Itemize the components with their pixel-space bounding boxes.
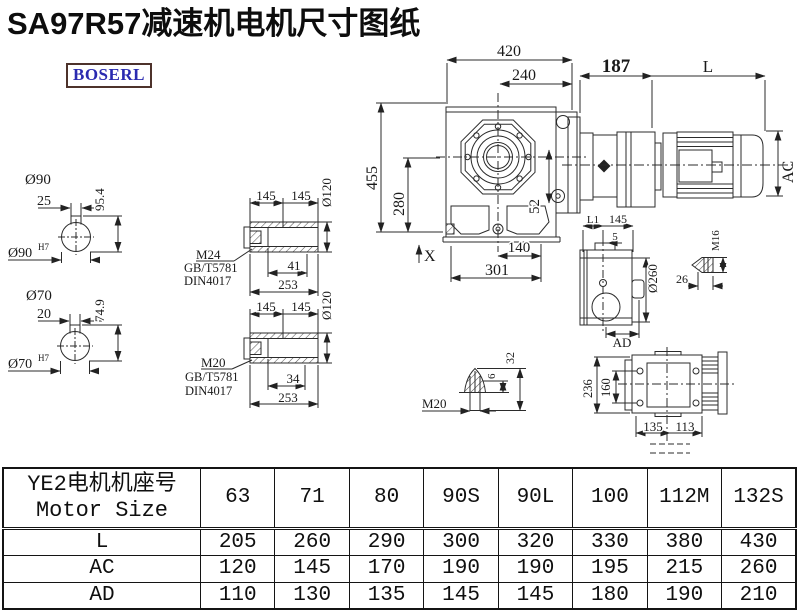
col-132s: 132S — [722, 468, 796, 528]
col-80: 80 — [349, 468, 423, 528]
dim-32: 32 — [503, 352, 517, 364]
gearbox-side-view: L1 145 5 Ø260 AD — [580, 212, 660, 350]
dim-145-b: 145 — [291, 188, 311, 203]
table-row-L: L 205 260 290 300 320 330 380 430 — [3, 528, 796, 556]
col-71: 71 — [275, 468, 349, 528]
dim-dia260: Ø260 — [645, 264, 660, 293]
header-cn: YE2电机机座号 — [4, 472, 200, 498]
dim-145-a: 145 — [256, 188, 276, 203]
dim-6: 6 — [486, 373, 498, 379]
row-label-AC: AC — [3, 556, 201, 582]
header-en: Motor Size — [4, 498, 200, 524]
col-90s: 90S — [424, 468, 498, 528]
dim-key-depth-74-9: 74.9 — [92, 299, 107, 322]
dim-AC: AC — [780, 161, 797, 183]
label-m20: M20 — [201, 355, 226, 370]
col-100: 100 — [573, 468, 647, 528]
dim-bore-90h7: Ø90 — [8, 246, 32, 261]
col-90l: 90L — [498, 468, 572, 528]
dim-dia120-upper: Ø120 — [319, 178, 334, 207]
label-m24: M24 — [196, 247, 221, 262]
dim-145-side: 145 — [609, 212, 627, 226]
label-m20-plug: M20 — [422, 396, 447, 411]
label-x-mark: X — [424, 248, 436, 265]
dim-41: 41 — [288, 258, 301, 273]
dim-34: 34 — [287, 371, 301, 386]
dim-dia120-lower: Ø120 — [319, 291, 334, 320]
dim-bore-70h7: Ø70 — [8, 357, 32, 372]
dim-420: 420 — [497, 43, 521, 60]
dim-26: 26 — [676, 272, 688, 286]
dim-140: 140 — [508, 240, 531, 256]
dim-AD: AD — [613, 335, 632, 350]
dim-253-upper: 253 — [278, 277, 298, 292]
table-header-motor-size: YE2电机机座号 Motor Size — [3, 468, 201, 528]
drawing-page: Ø90 25 95.4 Ø90 H7 Ø70 20 74.9 Ø70 H7 — [0, 0, 800, 613]
dim-240: 240 — [512, 67, 536, 84]
dim-bore-90h7-fit: H7 — [38, 242, 49, 252]
dim-236: 236 — [581, 379, 595, 398]
dim-113: 113 — [675, 419, 694, 434]
col-63: 63 — [201, 468, 275, 528]
label-m16: M16 — [710, 230, 722, 251]
table-row-AC: AC 120 145 170 190 190 195 215 260 — [3, 556, 796, 582]
dim-5: 5 — [612, 231, 618, 243]
dim-187: 187 — [602, 56, 631, 77]
dim-253-lower: 253 — [278, 390, 298, 405]
gearbox-rear-view: 236 160 135 113 — [581, 347, 734, 453]
col-112m: 112M — [647, 468, 721, 528]
motor-size-table: YE2电机机座号 Motor Size 63 71 80 90S 90L 100… — [2, 467, 797, 610]
dim-L: L — [703, 57, 713, 76]
dim-135: 135 — [643, 419, 663, 434]
dim-455: 455 — [364, 166, 381, 190]
dim-301: 301 — [485, 262, 509, 279]
dim-145-d: 145 — [291, 299, 311, 314]
dim-280: 280 — [391, 192, 408, 216]
hollow-shaft-lower: 145 145 Ø120 M20 GB/T5781 DIN4017 34 253 — [185, 291, 334, 408]
dim-52: 52 — [527, 199, 543, 214]
plug-bolt-m16: M16 26 — [676, 230, 727, 290]
dim-dia90: Ø90 — [25, 172, 51, 188]
label-gbt5781-upper: GB/T5781 — [184, 261, 237, 275]
row-label-AD: AD — [3, 582, 201, 609]
boserl-logo: BOSERL — [66, 63, 152, 88]
dim-L1: L1 — [587, 214, 599, 226]
label-gbt5781-lower: GB/T5781 — [185, 370, 238, 384]
table-row-AD: AD 110 130 135 145 145 180 190 210 — [3, 582, 796, 609]
dim-145-c: 145 — [256, 299, 276, 314]
dim-160: 160 — [599, 378, 613, 397]
dim-bore-70h7-fit: H7 — [38, 353, 49, 363]
shaft-section-70: Ø70 20 74.9 Ø70 H7 — [8, 288, 122, 374]
dim-key-width-25: 25 — [37, 194, 51, 209]
hollow-shaft-upper: 145 145 Ø120 M24 GB/T5781 DIN4017 41 253 — [184, 178, 334, 296]
motor-assembly — [562, 117, 795, 213]
label-din4017-lower: DIN4017 — [185, 384, 232, 398]
plug-bolt-m20: M20 6 32 — [422, 352, 526, 411]
dim-dia70: Ø70 — [26, 288, 52, 304]
dim-key-width-20: 20 — [37, 307, 51, 322]
dim-key-depth-95-4: 95.4 — [92, 188, 107, 211]
shaft-section-90: Ø90 25 95.4 Ø90 H7 — [8, 172, 122, 263]
label-din4017-upper: DIN4017 — [184, 274, 231, 288]
row-label-L: L — [3, 528, 201, 556]
page-title: SA97R57减速机电机尺寸图纸 — [7, 0, 420, 43]
